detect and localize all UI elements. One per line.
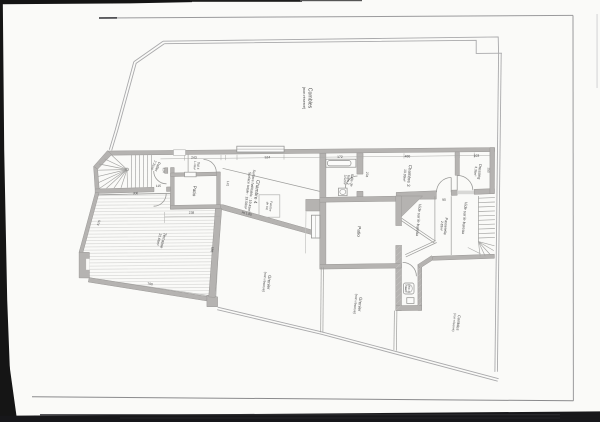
svg-text:204: 204 — [365, 172, 369, 178]
svg-text:Patio: Patio — [192, 186, 198, 197]
svg-text:Patio: Patio — [356, 226, 362, 237]
svg-text:de toit: de toit — [265, 202, 270, 211]
svg-text:90: 90 — [442, 198, 446, 202]
svg-text:150: 150 — [486, 167, 490, 173]
svg-text:243: 243 — [191, 156, 197, 160]
svg-text:2.83m²: 2.83m² — [439, 221, 444, 231]
svg-text:480: 480 — [405, 154, 411, 158]
svg-text:300: 300 — [133, 191, 139, 195]
svg-text:583: 583 — [210, 247, 214, 253]
svg-text:115: 115 — [156, 184, 161, 188]
svg-text:172: 172 — [337, 155, 343, 159]
svg-text:141: 141 — [226, 181, 230, 187]
svg-text:3.52m²: 3.52m² — [343, 175, 348, 185]
svg-text:760: 760 — [147, 282, 153, 287]
svg-text:524: 524 — [265, 155, 271, 159]
svg-text:Combles: Combles — [307, 88, 313, 109]
svg-text:1.37m²: 1.37m² — [404, 284, 409, 293]
svg-text:(non réservé): (non réservé) — [302, 87, 306, 110]
svg-text:103: 103 — [474, 154, 480, 158]
svg-text:238: 238 — [189, 211, 195, 215]
svg-text:114: 114 — [162, 167, 166, 173]
